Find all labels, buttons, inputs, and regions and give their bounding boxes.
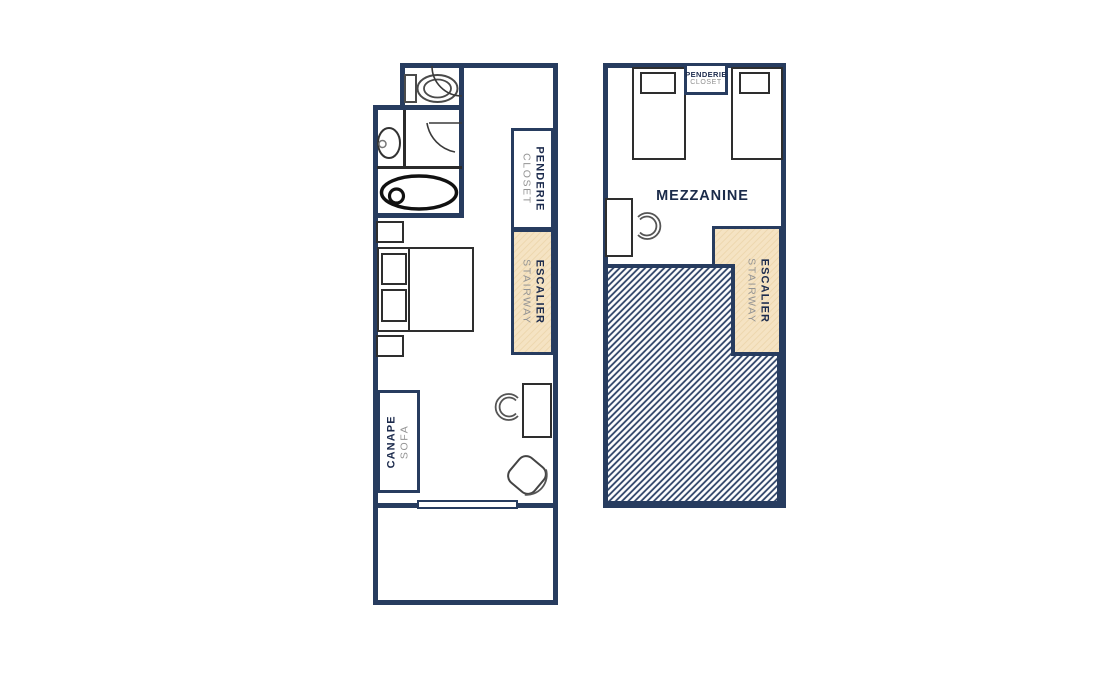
closet-label-en: CLOSET [690, 79, 722, 88]
stairway-label-en: STAIRWAY [745, 258, 758, 324]
wall-segment [603, 503, 786, 508]
mezzanine-title: MEZZANINE [640, 188, 765, 204]
closet-label-mezzanine: PENDERIE CLOSET [684, 63, 728, 95]
stairway-label-fr: ESCALIER [757, 258, 770, 324]
closet-label-en: CLOSET [520, 146, 533, 211]
sofa-label: CANAPE SOFA [377, 390, 420, 493]
closet-label-fr: PENDERIE [685, 70, 727, 79]
stairway-label-en: STAIRWAY [520, 259, 533, 325]
closet-label-fr: PENDERIE [532, 146, 545, 211]
sofa-label-en: SOFA [399, 415, 412, 468]
sofa-label-fr: CANAPE [386, 415, 399, 468]
pillow [640, 72, 676, 94]
floor-plan-canvas: PENDERIE CLOSET ESCALIER STAIRWAY CANAPE… [0, 0, 1101, 677]
pillow [739, 72, 770, 94]
desk [605, 198, 633, 257]
stairway-label-mezzanine: ESCALIER STAIRWAY [733, 226, 782, 356]
closet-label-ground: PENDERIE CLOSET [511, 128, 554, 230]
stairway-label-ground: ESCALIER STAIRWAY [511, 229, 554, 355]
wall-segment [603, 63, 608, 508]
stairway-label-fr: ESCALIER [532, 259, 545, 325]
